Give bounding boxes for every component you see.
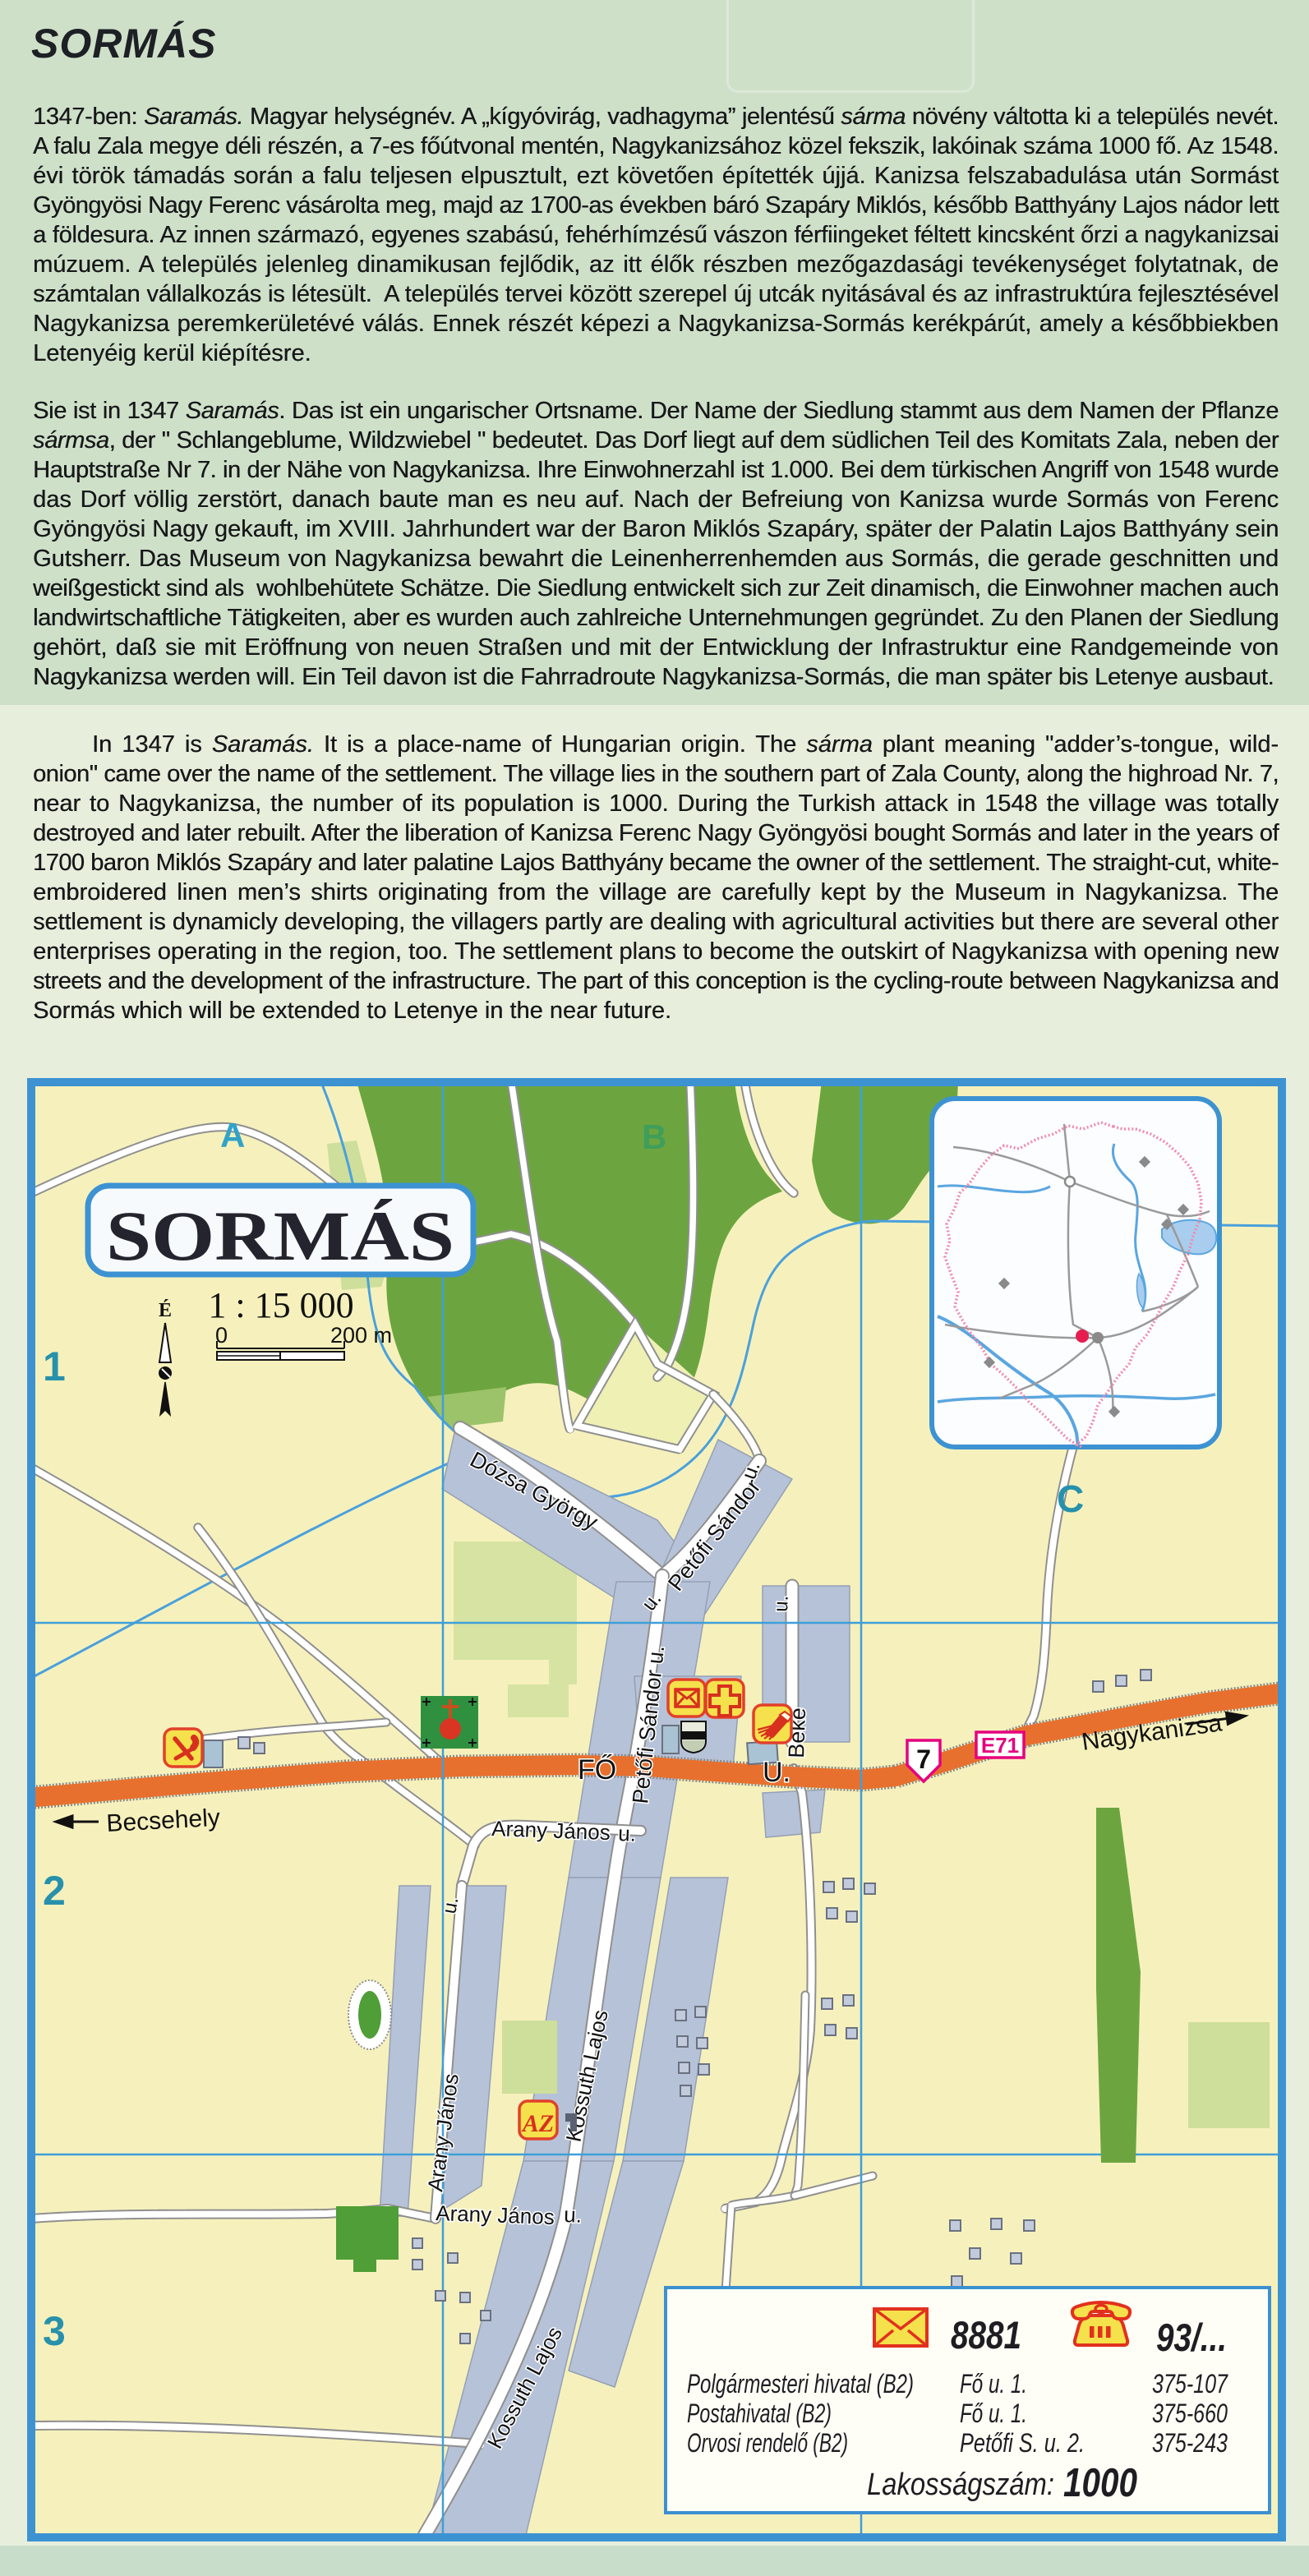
- svg-text:AZ: AZ: [521, 2110, 554, 2137]
- svg-text:1 : 15 000: 1 : 15 000: [208, 1285, 353, 1325]
- svg-text:Orvosi rendelő (B2): Orvosi rendelő (B2): [687, 2428, 848, 2458]
- svg-text:E71: E71: [981, 1733, 1019, 1758]
- svg-text:U.: U.: [763, 1757, 790, 1788]
- svg-text:B: B: [642, 1117, 666, 1156]
- svg-text:3: 3: [43, 2308, 66, 2354]
- svg-text:u.: u.: [770, 1595, 793, 1612]
- svg-text:Postahivatal (B2): Postahivatal (B2): [687, 2399, 832, 2428]
- svg-text:Lakosságszám:: Lakosságszám:: [867, 2468, 1054, 2502]
- svg-text:375-660: 375-660: [1152, 2399, 1228, 2428]
- svg-text:u.: u.: [564, 2202, 583, 2228]
- svg-text:C: C: [1057, 1477, 1084, 1520]
- svg-text:Petőfi S. u. 2.: Petőfi S. u. 2.: [960, 2428, 1085, 2458]
- svg-text:u.: u.: [618, 1821, 637, 1846]
- svg-text:7: 7: [916, 1744, 931, 1774]
- svg-text:SORMÁS: SORMÁS: [106, 1196, 454, 1275]
- svg-text:A: A: [220, 1116, 245, 1154]
- svg-text:2: 2: [43, 1868, 66, 1914]
- svg-text:93/...: 93/...: [1156, 2316, 1227, 2359]
- svg-text:Arany János: Arany János: [491, 1816, 611, 1845]
- svg-text:1000: 1000: [1063, 2461, 1137, 2505]
- svg-text:375-107: 375-107: [1152, 2369, 1228, 2399]
- svg-text:Fő u. 1.: Fő u. 1.: [960, 2369, 1027, 2399]
- svg-text:200 m: 200 m: [330, 1323, 392, 1348]
- svg-text:É: É: [159, 1300, 172, 1321]
- svg-text:Fő u. 1.: Fő u. 1.: [960, 2399, 1027, 2428]
- svg-text:Polgármesteri hivatal (B2): Polgármesteri hivatal (B2): [687, 2369, 914, 2399]
- svg-text:FŐ: FŐ: [578, 1754, 616, 1786]
- svg-text:Arany János: Arany János: [436, 2200, 555, 2229]
- svg-text:1: 1: [43, 1343, 66, 1389]
- svg-text:8881: 8881: [951, 2313, 1021, 2357]
- svg-text:375-243: 375-243: [1152, 2428, 1228, 2458]
